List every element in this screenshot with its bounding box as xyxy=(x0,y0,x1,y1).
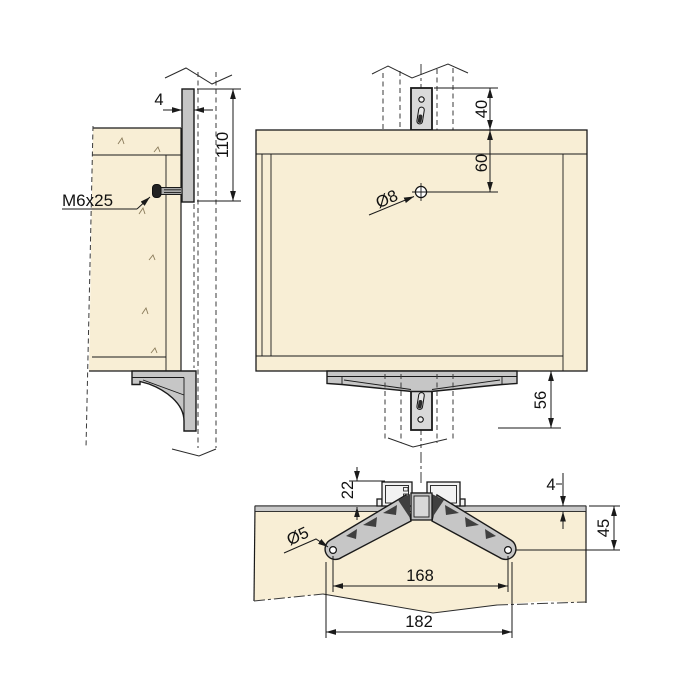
side-hidden-lines xyxy=(194,72,216,448)
dim-label-56: 56 xyxy=(532,391,550,409)
dim-label-168: 168 xyxy=(406,567,434,585)
screw-label: M6x25 xyxy=(62,191,113,210)
technical-drawing-page: 4 110 M6x25 xyxy=(0,0,700,700)
dim-rail-height: 110 xyxy=(197,89,241,201)
dim-label-60: 60 xyxy=(473,154,491,172)
front-view: Ø8 40 xyxy=(256,64,587,448)
shelf-panel-plan xyxy=(254,506,586,613)
screw-head xyxy=(153,185,162,198)
dim-label-40: 40 xyxy=(473,100,491,118)
break-line-bottom xyxy=(388,438,447,447)
bracket-hole-right xyxy=(505,547,512,554)
dim-label-110: 110 xyxy=(214,132,232,158)
panel-front xyxy=(256,130,587,371)
dim-label-4b: 4 xyxy=(546,476,555,494)
rail-side-profile xyxy=(182,89,194,202)
installation-diagram: 4 110 M6x25 xyxy=(0,0,700,700)
top-view: 22 4 45 Ø5 168 xyxy=(254,452,620,638)
dim-label-4: 4 xyxy=(154,91,163,109)
break-line-top xyxy=(372,64,468,78)
side-view: 4 110 M6x25 xyxy=(62,68,241,456)
dim-label-22: 22 xyxy=(339,481,357,499)
dim-label-45: 45 xyxy=(595,519,613,537)
bracket-front xyxy=(327,371,517,392)
rail-hole xyxy=(419,97,424,102)
bracket-hole-left xyxy=(330,547,337,554)
rail-front-top xyxy=(411,88,432,130)
dim-rail-above-panel: 40 xyxy=(434,88,498,130)
bracket-side-profile xyxy=(132,371,196,431)
panel-section xyxy=(89,128,181,371)
break-line-bottom xyxy=(172,449,216,456)
dim-label-182: 182 xyxy=(405,613,433,631)
